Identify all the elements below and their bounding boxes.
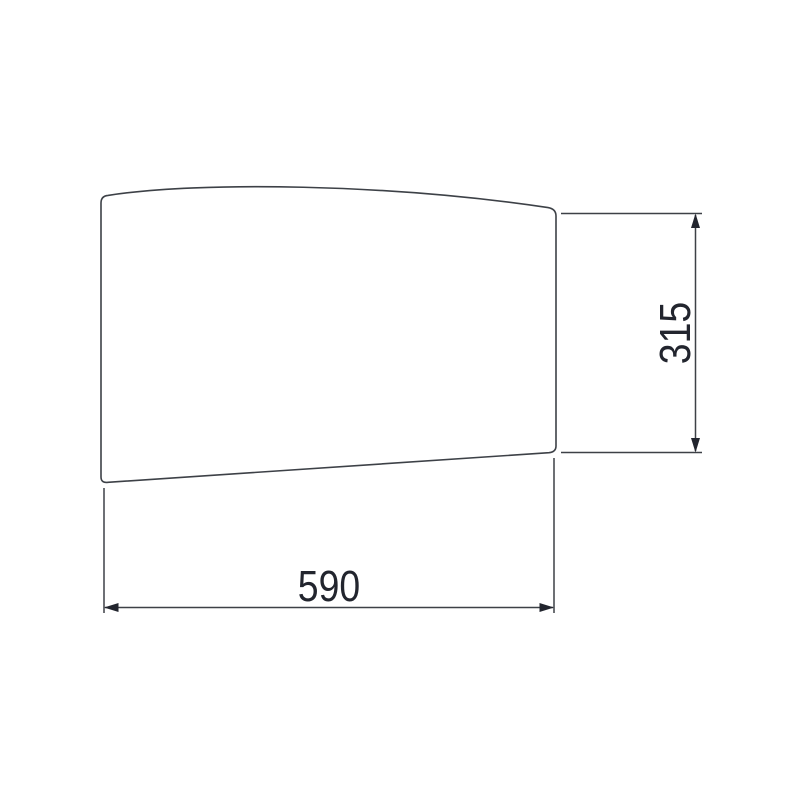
arrow-left-icon	[104, 603, 119, 612]
width-dimension: 590	[104, 458, 554, 613]
height-dimension: 315	[561, 214, 702, 453]
technical-drawing: 315 590	[0, 0, 800, 800]
part-outline	[101, 187, 556, 483]
height-dimension-label: 315	[650, 302, 700, 364]
arrow-right-icon	[540, 603, 555, 612]
drawing-canvas: 315 590	[0, 0, 800, 800]
arrow-up-icon	[691, 214, 700, 229]
width-dimension-label: 590	[298, 561, 360, 611]
arrow-down-icon	[691, 438, 700, 453]
